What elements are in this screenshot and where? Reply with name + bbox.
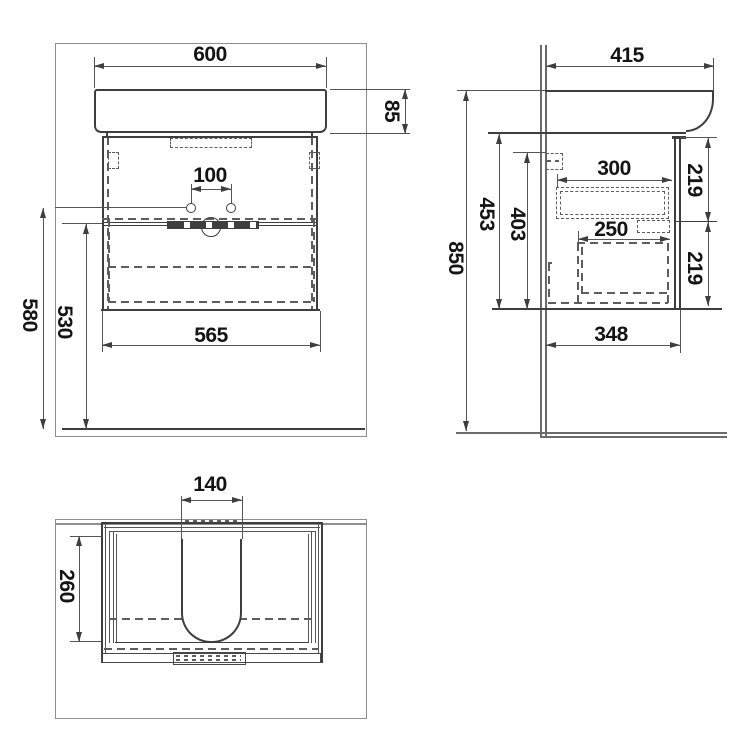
dim-top-height: 530 — [52, 305, 76, 339]
cabinet-bottom-line — [101, 309, 320, 311]
dim-cutout-width: 140 — [193, 473, 227, 497]
side-floor-line — [456, 432, 727, 434]
cabinet-front-panel2 — [679, 137, 681, 309]
washbasin-front — [94, 89, 327, 133]
dim-tap-hole-spacing: 100 — [193, 164, 227, 188]
dim-arrow — [402, 124, 408, 134]
dim-total-height: 850 — [443, 241, 467, 275]
drain-hole — [201, 217, 221, 237]
ext-line — [330, 89, 410, 90]
ext-line — [242, 496, 243, 539]
tap-hole-right — [226, 203, 236, 213]
hidden-line — [581, 247, 583, 293]
hidden-line — [577, 242, 668, 244]
dim-tap-height: 580 — [17, 298, 41, 332]
dim-arrow — [83, 224, 89, 234]
dim-basin-width: 600 — [193, 43, 227, 67]
plan-hidden-line — [104, 648, 319, 650]
dim-arrow — [94, 63, 104, 69]
hidden-line — [548, 263, 550, 303]
plan-cabinet-right — [321, 523, 323, 663]
dim-arrow — [670, 342, 680, 348]
dim-upper-drawer-depth: 300 — [597, 157, 631, 181]
hinge-mark-right — [309, 152, 320, 169]
technical-drawing-canvas: 600 85 100 565 580 530 — [0, 0, 750, 750]
dim-arrow — [705, 222, 711, 232]
dim-arrow — [546, 342, 556, 348]
hidden-line — [577, 243, 579, 303]
hidden-line — [108, 266, 313, 268]
dim-line — [79, 536, 80, 642]
dim-arrow — [221, 186, 231, 192]
dim-cabinet-depth: 348 — [594, 323, 628, 347]
dim-arrow — [496, 134, 502, 144]
dim-arrow — [191, 186, 201, 192]
plan-cabinet-back2 — [104, 527, 320, 528]
dim-line — [708, 222, 709, 306]
hidden-line — [548, 302, 668, 304]
dim-arrow — [524, 153, 530, 163]
plan-drawer-side — [113, 531, 114, 643]
dim-arrow — [181, 497, 191, 503]
hidden-line — [108, 219, 110, 302]
dim-arrow — [557, 177, 567, 183]
ext-line — [320, 311, 321, 352]
washbasin-side-curve — [686, 99, 714, 132]
hinge-mark-left — [108, 152, 119, 169]
ext-line — [457, 90, 545, 91]
dim-cabinet-height: 403 — [505, 207, 529, 241]
dim-arrow — [662, 177, 672, 183]
ext-line — [680, 137, 717, 138]
dim-line — [578, 239, 670, 240]
hidden-line — [667, 243, 669, 303]
dim-arrow — [102, 342, 112, 348]
side-wall-line — [540, 45, 542, 437]
cabinet-front-panel — [674, 137, 676, 309]
dim-arrow — [232, 497, 242, 503]
dim-arrow — [496, 299, 502, 309]
dim-arrow — [40, 208, 46, 218]
plan-cabinet-back — [101, 522, 323, 524]
plan-drawer-side — [311, 531, 312, 643]
hidden-line — [581, 292, 668, 294]
plan-cabinet-left2 — [105, 523, 106, 653]
dim-cabinet-width: 565 — [194, 324, 228, 348]
dim-arrow — [463, 91, 469, 101]
handle-hidden-line — [176, 655, 241, 657]
ext-line — [70, 536, 101, 537]
hidden-line — [313, 219, 315, 302]
dim-arrow — [83, 419, 89, 429]
dim-lower-front-height: 219 — [682, 251, 706, 285]
tap-hole-left — [186, 203, 196, 213]
dim-line — [499, 133, 500, 309]
dim-cutout-depth: 260 — [54, 569, 78, 603]
ext-line-tap-height — [55, 207, 186, 208]
plan-drawer-side — [315, 531, 316, 643]
ext-line — [330, 133, 410, 134]
side-wall-line2 — [545, 45, 547, 437]
dim-upper-front-height: 219 — [682, 163, 706, 197]
dim-line — [43, 208, 44, 429]
side-floor-line2 — [540, 436, 727, 438]
dim-line — [708, 138, 709, 222]
dim-arrow — [76, 536, 82, 546]
dim-line — [86, 224, 87, 429]
washbasin-side-bottom — [488, 132, 686, 134]
dim-basin-depth: 415 — [610, 44, 644, 68]
plan-drawer-side — [109, 531, 110, 643]
ext-line — [94, 57, 95, 88]
wall-bracket-mid — [547, 160, 560, 162]
upper-drawer-hidden-inner — [560, 191, 665, 215]
ext-line — [326, 57, 327, 88]
dim-arrow — [402, 89, 408, 99]
dim-basin-height: 85 — [379, 100, 403, 122]
tap-holes-hidden-plan — [185, 520, 237, 522]
dim-arrow — [310, 342, 320, 348]
ext-line — [70, 641, 101, 642]
plan-cabinet-left — [101, 523, 103, 663]
dim-arrow — [463, 421, 469, 431]
drawer-handle-hidden-top — [170, 138, 252, 148]
front-floor-line — [62, 428, 365, 430]
dim-arrow — [704, 63, 714, 69]
dim-arrow — [40, 419, 46, 429]
dim-arrow — [705, 138, 711, 148]
dim-arrow — [316, 63, 326, 69]
dim-arrow — [705, 296, 711, 306]
ext-line — [680, 310, 681, 353]
siphon-hidden — [637, 220, 670, 233]
plan-drawer-side — [116, 534, 117, 643]
hidden-line — [108, 301, 313, 303]
cabinet-side-left — [102, 137, 104, 310]
hidden-line — [548, 262, 556, 264]
dim-arrow — [76, 632, 82, 642]
plan-cabinet-right2 — [318, 523, 319, 653]
plan-drawer-side — [308, 534, 309, 643]
washbasin-side-top — [545, 90, 714, 92]
ext-line-top-height — [62, 223, 102, 224]
handle-hidden-line — [176, 659, 241, 661]
dim-underbasin-height: 453 — [474, 197, 498, 231]
siphon-cutout-u — [181, 539, 242, 643]
plan-drawer-back — [109, 531, 315, 532]
dim-arrow — [546, 63, 556, 69]
dim-arrow — [524, 299, 530, 309]
ext-line — [231, 184, 232, 203]
